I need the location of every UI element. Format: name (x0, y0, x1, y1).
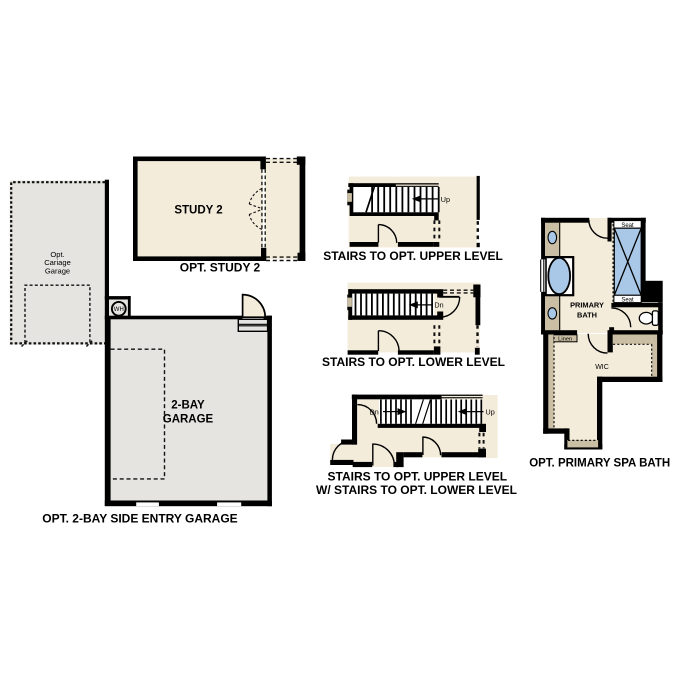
svg-text:Seat: Seat (621, 298, 634, 304)
svg-text:BATH: BATH (577, 311, 597, 320)
svg-text:2-BAY: 2-BAY (171, 400, 205, 412)
svg-text:OPT. STUDY 2: OPT. STUDY 2 (180, 261, 261, 275)
svg-text:Garage: Garage (45, 267, 70, 276)
svg-text:PRIMARY: PRIMARY (570, 301, 604, 310)
svg-text:WIC: WIC (595, 364, 609, 371)
svg-text:OPT. PRIMARY SPA BATH: OPT. PRIMARY SPA BATH (529, 458, 670, 470)
svg-text:Up: Up (441, 195, 450, 204)
svg-text:STAIRS TO OPT. UPPER LEVEL: STAIRS TO OPT. UPPER LEVEL (328, 470, 508, 484)
svg-text:STUDY 2: STUDY 2 (174, 205, 222, 217)
svg-text:STAIRS TO OPT. UPPER LEVEL: STAIRS TO OPT. UPPER LEVEL (323, 249, 503, 263)
svg-text:Seat: Seat (621, 223, 634, 229)
svg-text:Up: Up (486, 408, 495, 417)
svg-text:STAIRS TO OPT. LOWER LEVEL: STAIRS TO OPT. LOWER LEVEL (322, 355, 505, 369)
svg-text:Dn: Dn (434, 301, 443, 310)
svg-text:Linen: Linen (558, 337, 572, 343)
svg-text:GARAGE: GARAGE (163, 414, 214, 426)
svg-text:OPT. 2-BAY SIDE ENTRY GARAGE: OPT. 2-BAY SIDE ENTRY GARAGE (42, 512, 237, 526)
svg-text:WH: WH (114, 307, 124, 313)
svg-text:W/ STAIRS TO OPT. LOWER LEVEL: W/ STAIRS TO OPT. LOWER LEVEL (316, 483, 517, 497)
